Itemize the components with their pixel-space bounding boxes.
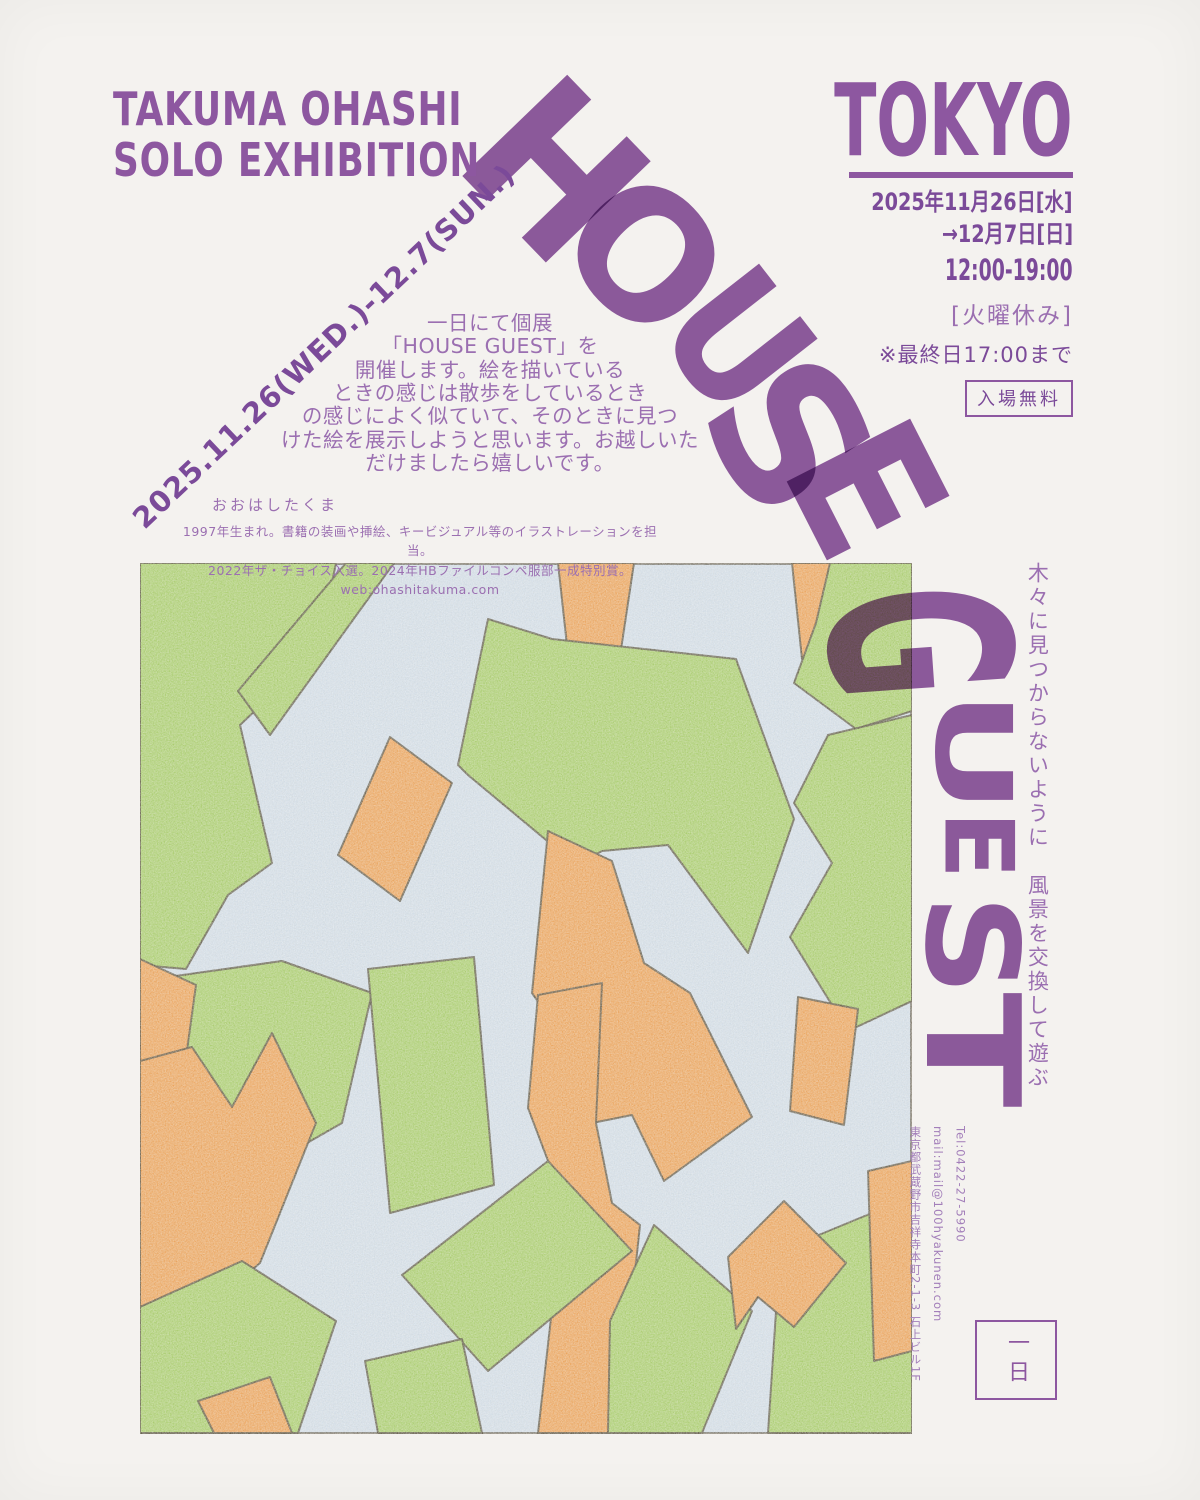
exhibition-title: TAKUMA OHASHI SOLO EXHIBITION <box>113 84 584 185</box>
exhibition-title-line2: SOLO EXHIBITION <box>113 135 480 186</box>
contact-mail: mail:mail@100hyakunen.com <box>926 1126 948 1446</box>
admission-badge-row: 入場無料 <box>688 369 1073 417</box>
title-letter-t: T <box>907 992 1037 1107</box>
exhibition-title-line1: TAKUMA OHASHI <box>113 84 462 135</box>
artist-bio-line2: 2022年ザ・チョイス入選。2024年HBファイルコンペ服部一成特別賞。web:… <box>170 561 670 600</box>
closed-days: [火曜休み] <box>688 296 1073 330</box>
title-letter-u: U <box>920 690 1025 814</box>
artist-bio: 1997年生まれ。書籍の装画や挿絵、キービジュアル等のイラストレーションを担当。… <box>170 522 670 600</box>
title-letter-s: S <box>906 894 1034 995</box>
artwork-illustration <box>140 563 912 1434</box>
date-start: 2025年11月26日[水] <box>688 190 1073 214</box>
admission-free-badge: 入場無料 <box>965 380 1073 417</box>
intro-paragraph: 一日にて個展 「HOUSE GUEST」を 開催します。絵を描いている ときの感… <box>265 312 715 476</box>
title-letter-e: E <box>930 811 1025 879</box>
open-hours: 12:00-19:00 <box>688 253 1073 287</box>
contact-tel: Tel:0422-27-5990 <box>949 1126 971 1446</box>
gallery-name-box: 一日 <box>975 1320 1057 1400</box>
gallery-name: 一日 <box>1000 1331 1032 1389</box>
artist-name: おおはしたくま <box>212 494 338 515</box>
exhibition-poster: HOUSEGUEST TAKUMA OHASHI SOLO EXHIBITION… <box>0 0 1200 1500</box>
contact-block: Tel:0422-27-5990 mail:mail@100hyakunen.c… <box>904 1126 971 1446</box>
contact-address: 東京都武蔵野市吉祥寺本町2-1-3 石上ビル1F <box>904 1126 926 1446</box>
date-end: →12月7日[日] <box>688 222 1073 246</box>
vertical-tagline: 木々に見つからないように 風景を交換して遊ぶ <box>1022 562 1051 1142</box>
artist-bio-line1: 1997年生まれ。書籍の装画や挿絵、キービジュアル等のイラストレーションを担当。 <box>170 522 670 561</box>
last-day-note: ※最終日17:00まで <box>688 339 1073 369</box>
schedule-block: TOKYO 2025年11月26日[水] →12月7日[日] 12:00-19:… <box>688 80 1073 417</box>
venue-city: TOKYO <box>688 80 1073 162</box>
title-letter-e: E <box>753 395 975 585</box>
